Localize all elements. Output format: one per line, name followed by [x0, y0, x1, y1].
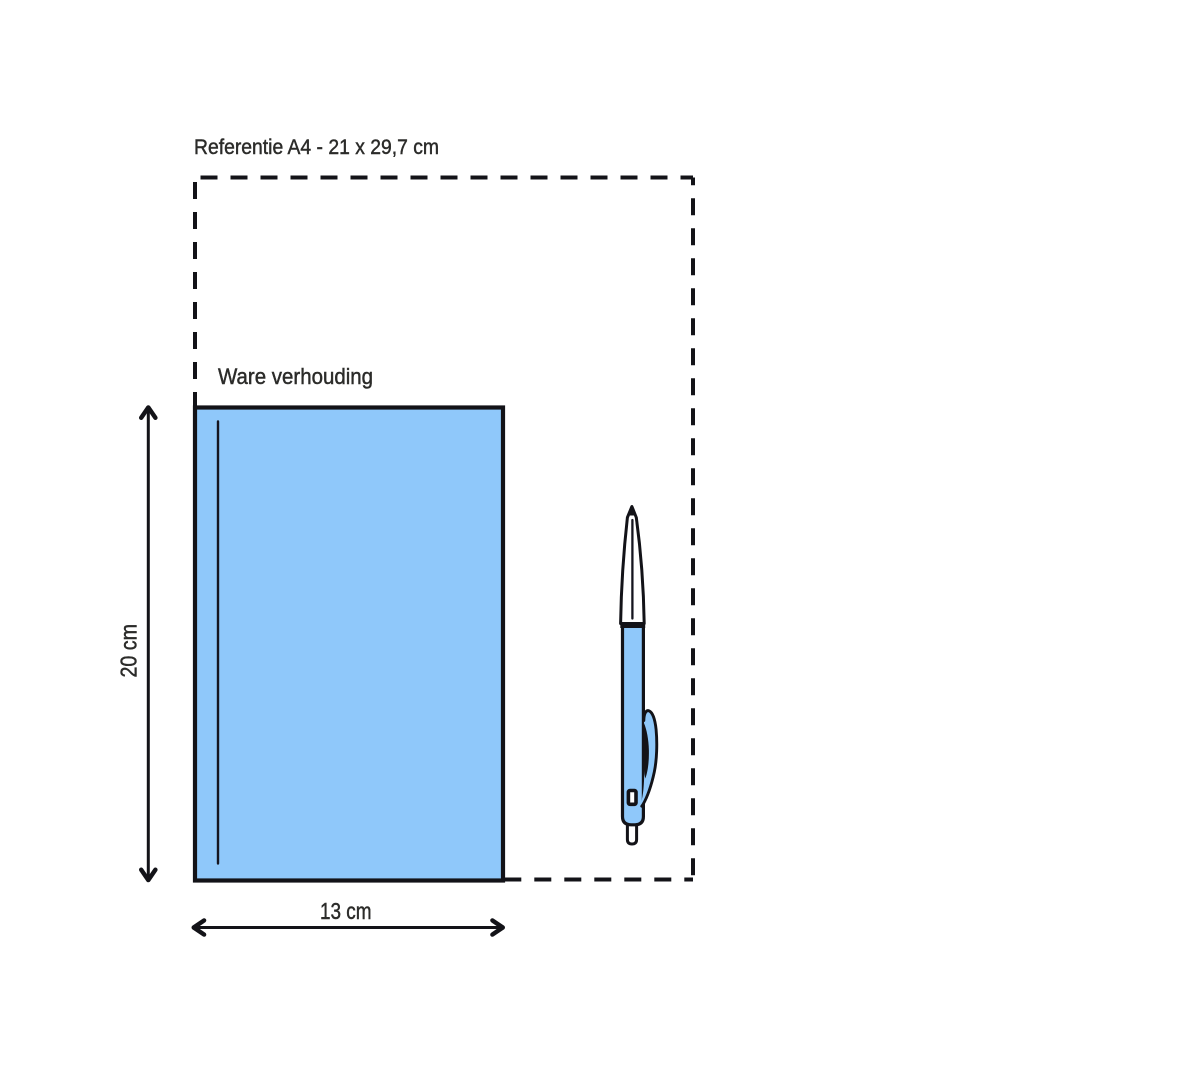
svg-text:Referentie A4 - 21 x 29,7 cm: Referentie A4 - 21 x 29,7 cm [194, 135, 439, 159]
svg-text:13 cm: 13 cm [320, 898, 372, 924]
svg-text:Ware verhouding: Ware verhouding [218, 364, 373, 389]
svg-text:20 cm: 20 cm [116, 624, 142, 678]
